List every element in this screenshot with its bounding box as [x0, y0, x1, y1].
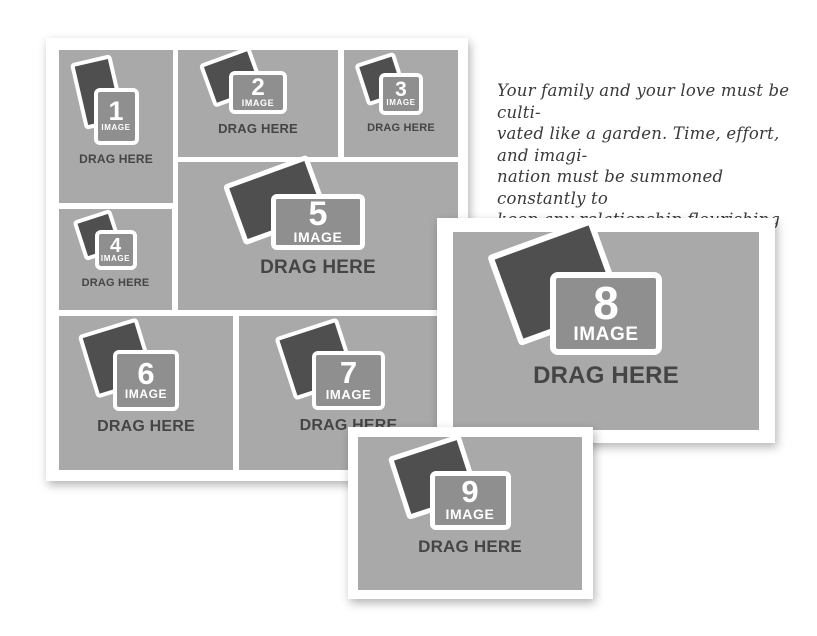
- image-label: IMAGE: [326, 388, 372, 402]
- image-label: IMAGE: [294, 230, 343, 245]
- slot-number: 3: [395, 80, 407, 99]
- image-label: IMAGE: [101, 124, 130, 132]
- image-placeholder-box: 6 IMAGE: [113, 350, 179, 411]
- photo-card-8: 8 IMAGE DRAG HERE: [437, 218, 775, 443]
- slot-number: 9: [461, 478, 478, 507]
- image-placeholder-box: 2 IMAGE: [229, 71, 287, 114]
- image-placeholder-box: 8 IMAGE: [550, 272, 662, 355]
- drag-here-label: DRAG HERE: [97, 418, 195, 436]
- drag-here-label: DRAG HERE: [367, 122, 435, 134]
- slot-number: 8: [593, 282, 619, 324]
- image-label: IMAGE: [101, 255, 130, 263]
- image-label: IMAGE: [242, 99, 275, 108]
- image-placeholder-box: 7 IMAGE: [312, 351, 385, 410]
- slot-number: 5: [309, 199, 328, 230]
- image-label: IMAGE: [386, 99, 415, 107]
- quote-line: Your family and your love must be culti-: [497, 80, 813, 123]
- photo-stack-icon: 8 IMAGE: [550, 272, 662, 355]
- drag-here-label: DRAG HERE: [218, 121, 298, 136]
- drag-here-label: DRAG HERE: [79, 152, 153, 166]
- photo-stack-icon: 3 IMAGE: [379, 73, 423, 115]
- page-canvas: 1 IMAGE DRAG HERE 2 IMAGE DRAG HERE 3: [0, 0, 817, 636]
- drag-here-label: DRAG HERE: [533, 362, 679, 390]
- photo-stack-icon: 2 IMAGE: [229, 71, 287, 114]
- photo-stack-icon: 5 IMAGE: [271, 194, 365, 250]
- photo-stack-icon: 4 IMAGE: [95, 230, 137, 270]
- drag-here-label: DRAG HERE: [260, 257, 376, 279]
- slot-number: 6: [137, 360, 154, 389]
- image-slot-9[interactable]: 9 IMAGE DRAG HERE: [358, 437, 582, 590]
- image-placeholder-box: 9 IMAGE: [430, 471, 511, 530]
- image-slot-1[interactable]: 1 IMAGE DRAG HERE: [59, 50, 173, 203]
- slot-number: 4: [110, 237, 121, 255]
- image-placeholder-box: 1 IMAGE: [94, 88, 139, 145]
- image-slot-5[interactable]: 5 IMAGE DRAG HERE: [178, 162, 458, 310]
- quote-line: nation must be summoned constantly to: [497, 166, 813, 209]
- image-placeholder-box: 5 IMAGE: [271, 194, 365, 250]
- slot-number: 7: [340, 359, 357, 388]
- drag-here-label: DRAG HERE: [418, 537, 522, 557]
- photo-stack-icon: 6 IMAGE: [113, 350, 179, 411]
- photo-stack-icon: 9 IMAGE: [430, 471, 511, 530]
- photo-stack-icon: 1 IMAGE: [94, 88, 139, 145]
- image-placeholder-box: 4 IMAGE: [95, 230, 137, 270]
- quote-line: vated like a garden. Time, effort, and i…: [497, 123, 813, 166]
- image-slot-4[interactable]: 4 IMAGE DRAG HERE: [59, 209, 172, 310]
- image-label: IMAGE: [446, 507, 495, 522]
- slot-number: 1: [108, 99, 123, 124]
- collage-template-board: 1 IMAGE DRAG HERE 2 IMAGE DRAG HERE 3: [46, 38, 468, 481]
- image-placeholder-box: 3 IMAGE: [379, 73, 423, 115]
- photo-card-9: 9 IMAGE DRAG HERE: [348, 427, 593, 599]
- slot-number: 2: [251, 77, 264, 99]
- image-slot-8[interactable]: 8 IMAGE DRAG HERE: [453, 232, 759, 430]
- photo-stack-icon: 7 IMAGE: [312, 351, 385, 410]
- image-slot-2[interactable]: 2 IMAGE DRAG HERE: [178, 50, 338, 157]
- image-slot-3[interactable]: 3 IMAGE DRAG HERE: [344, 50, 458, 157]
- image-slot-6[interactable]: 6 IMAGE DRAG HERE: [59, 316, 233, 470]
- image-label: IMAGE: [125, 388, 167, 401]
- drag-here-label: DRAG HERE: [82, 277, 150, 289]
- image-label: IMAGE: [573, 325, 638, 345]
